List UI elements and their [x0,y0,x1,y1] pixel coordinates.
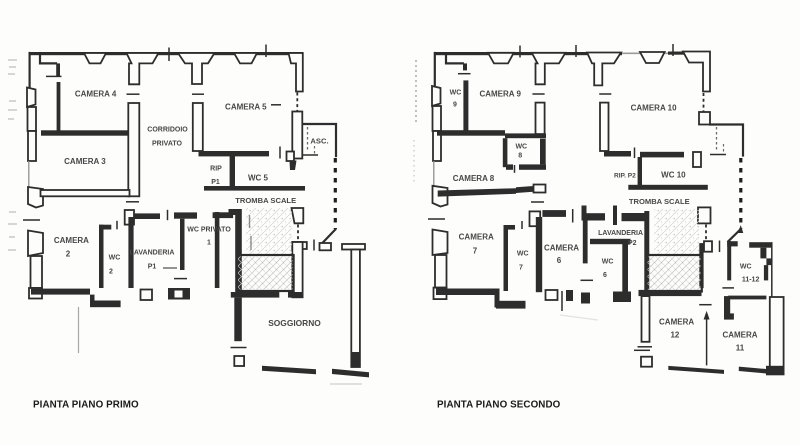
svg-text:RIP: RIP [210,166,222,173]
svg-text:P2: P2 [628,240,637,247]
svg-text:CAMERA: CAMERA [544,244,579,253]
svg-text:RIP. P2: RIP. P2 [614,173,636,180]
svg-text:CAMERA 4: CAMERA 4 [75,90,117,99]
svg-text:6: 6 [557,256,562,265]
svg-text:CAMERA 5: CAMERA 5 [225,102,267,111]
svg-text:WC: WC [450,90,462,97]
svg-text:WC: WC [515,144,527,151]
svg-text:2: 2 [66,250,71,259]
svg-text:ASC.: ASC. [310,137,328,146]
svg-text:CAMERA: CAMERA [459,233,494,242]
svg-text:CAMERA 9: CAMERA 9 [479,90,521,99]
svg-text:CAMERA: CAMERA [659,318,694,327]
svg-text:P1: P1 [148,263,157,270]
svg-text:WC: WC [517,251,529,258]
svg-text:CAMERA: CAMERA [54,236,89,245]
svg-text:7: 7 [473,247,478,256]
svg-text:6: 6 [603,272,607,279]
svg-text:TROMBA SCALE: TROMBA SCALE [629,197,690,206]
svg-text:TROMBA SCALE: TROMBA SCALE [235,196,296,205]
svg-text:LAVANDERIA: LAVANDERIA [130,249,175,256]
svg-text:CAMERA: CAMERA [722,331,757,340]
svg-text:11: 11 [736,344,745,353]
svg-text:2: 2 [109,268,113,275]
svg-text:WC 5: WC 5 [248,173,269,182]
svg-text:12: 12 [670,331,679,340]
svg-text:P1: P1 [211,179,220,186]
svg-text:LAVANDERIA: LAVANDERIA [598,230,643,237]
svg-text:PIANTA PIANO PRIMO: PIANTA PIANO PRIMO [33,399,139,410]
svg-text:PIANTA PIANO SECONDO: PIANTA PIANO SECONDO [437,399,561,410]
svg-text:SOGGIORNO: SOGGIORNO [268,318,321,328]
svg-text:7: 7 [519,265,523,272]
svg-text:1: 1 [207,239,211,246]
svg-text:CAMERA 10: CAMERA 10 [631,104,677,113]
svg-text:PRIVATO: PRIVATO [152,140,183,147]
svg-text:WC PRIVATO: WC PRIVATO [187,226,231,233]
svg-text:WC 10: WC 10 [661,171,686,180]
svg-text:CORRIDOIO: CORRIDOIO [147,126,188,133]
svg-text:CAMERA 3: CAMERA 3 [64,157,106,166]
svg-text:9: 9 [453,102,457,109]
svg-text:WC: WC [740,264,752,271]
svg-text:WC: WC [602,259,614,266]
svg-text:WC: WC [109,254,121,261]
svg-text:8: 8 [518,153,522,160]
svg-text:CAMERA 8: CAMERA 8 [453,174,495,183]
svg-text:11-12: 11-12 [742,277,760,284]
